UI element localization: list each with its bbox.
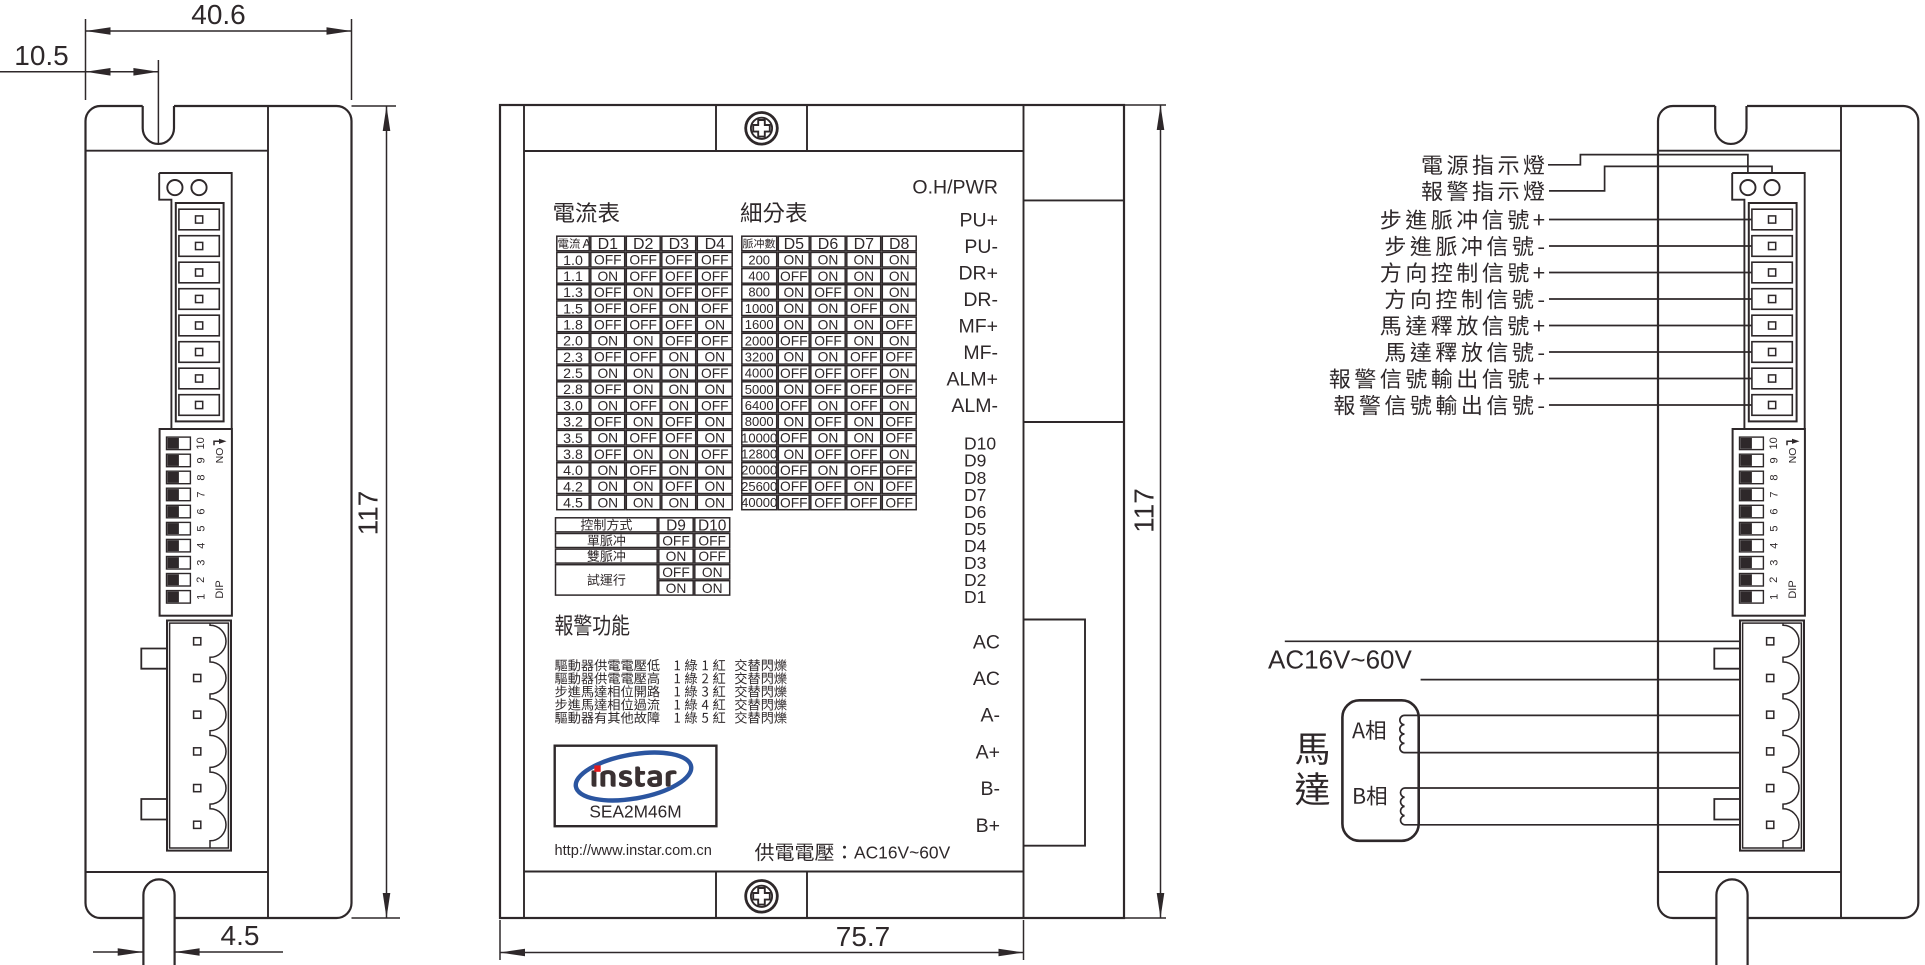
svg-text:OFF: OFF [780,366,808,381]
svg-text:OFF: OFF [814,382,842,397]
svg-text:OFF: OFF [780,269,808,284]
svg-text:ON: ON [668,495,689,510]
svg-text:ON: ON [853,415,874,430]
svg-text:8: 8 [1768,474,1780,480]
svg-text:OFF: OFF [701,269,729,284]
svg-text:2.0: 2.0 [563,334,583,350]
svg-text:ON: ON [818,317,839,332]
svg-text:OFF: OFF [701,447,729,462]
svg-text:ON: ON [668,366,689,381]
svg-text:A+: A+ [976,741,1000,763]
svg-text:2.8: 2.8 [563,382,583,398]
svg-text:ON: ON [853,479,874,494]
svg-text:OFF: OFF [850,301,878,316]
svg-text:D6: D6 [818,236,839,253]
svg-text:ON: ON [702,581,723,596]
svg-text:OFF: OFF [665,479,693,494]
svg-text:3: 3 [195,560,207,566]
svg-text:4.5: 4.5 [221,920,260,951]
svg-text:3.5: 3.5 [563,431,583,447]
svg-text:D5: D5 [784,236,805,253]
svg-text:2: 2 [195,577,207,583]
svg-text:OFF: OFF [701,253,729,268]
svg-text:AC16V~60V: AC16V~60V [1268,645,1412,675]
svg-text:ON: ON [853,334,874,349]
svg-text:40000: 40000 [741,495,777,510]
svg-text:OFF: OFF [629,350,657,365]
svg-text:40.6: 40.6 [191,0,246,30]
svg-text:OFF: OFF [780,495,808,510]
svg-text:ON: ON [853,317,874,332]
svg-text:ON: ON [783,415,804,430]
svg-text:OFF: OFF [885,495,913,510]
svg-text:D8: D8 [889,236,910,253]
svg-text:OFF: OFF [780,334,808,349]
svg-text:OFF: OFF [662,565,690,580]
svg-text:ON: ON [818,253,839,268]
svg-text:5000: 5000 [745,382,774,397]
svg-text:OFF: OFF [665,334,693,349]
svg-text:DR+: DR+ [958,263,998,285]
svg-text:4000: 4000 [745,366,774,381]
svg-text:B+: B+ [976,815,1000,837]
svg-text:4.5: 4.5 [563,496,583,512]
svg-text:D3: D3 [669,236,690,253]
svg-text:OFF: OFF [850,350,878,365]
svg-text:OFF: OFF [594,447,622,462]
svg-text:ON: ON [853,253,874,268]
svg-text:ON: ON [597,479,618,494]
svg-text:OFF: OFF [698,549,726,564]
svg-text:ON: ON [597,398,618,413]
svg-text:ON: ON [704,382,725,397]
svg-text:800: 800 [748,285,770,300]
svg-text:ON: ON [889,301,910,316]
svg-text:20000: 20000 [741,463,777,478]
svg-text:AC: AC [973,668,1000,690]
svg-text:3.2: 3.2 [563,415,583,431]
svg-text:ON: ON [853,285,874,300]
svg-text:OFF: OFF [594,415,622,430]
svg-text:2.5: 2.5 [563,366,583,382]
svg-text:OFF: OFF [885,382,913,397]
svg-text:OFF: OFF [814,366,842,381]
svg-text:OFF: OFF [850,366,878,381]
svg-text:117: 117 [353,491,384,536]
svg-text:25600: 25600 [741,479,777,494]
svg-text:OFF: OFF [814,415,842,430]
svg-text:DIP: DIP [1787,580,1799,598]
svg-text:ON: ON [633,334,654,349]
svg-text:OFF: OFF [885,350,913,365]
svg-text:ON: ON [818,350,839,365]
svg-text:1.3: 1.3 [563,285,583,301]
svg-text:3: 3 [1768,560,1780,566]
svg-text:MF-: MF- [963,342,998,364]
svg-text:ON: ON [783,350,804,365]
svg-text:8: 8 [195,474,207,480]
svg-text:10.5: 10.5 [14,40,69,71]
svg-text:1: 1 [195,594,207,600]
svg-text:ON: ON [783,317,804,332]
svg-text:OFF: OFF [885,463,913,478]
svg-text:ON: ON [597,269,618,284]
svg-text:O.H/PWR: O.H/PWR [912,177,998,199]
svg-text:ON: ON [818,398,839,413]
svg-text:3.8: 3.8 [563,447,583,463]
svg-text:1.1: 1.1 [563,269,583,285]
svg-text:OFF: OFF [814,285,842,300]
svg-text:1.8: 1.8 [563,318,583,334]
svg-text:ON: ON [597,366,618,381]
svg-text:9: 9 [1768,457,1780,463]
svg-text:400: 400 [748,269,770,284]
svg-text:ON: ON [853,269,874,284]
svg-text:6: 6 [195,509,207,515]
svg-text:OFF: OFF [850,382,878,397]
svg-text:OFF: OFF [594,253,622,268]
svg-text:ALM-: ALM- [951,395,998,417]
svg-text:7: 7 [1768,491,1780,497]
svg-text:ON: ON [668,447,689,462]
svg-text:OFF: OFF [662,534,690,549]
svg-text:OFF: OFF [629,301,657,316]
svg-text:1.5: 1.5 [563,301,583,317]
svg-text:OFF: OFF [701,366,729,381]
svg-text:OFF: OFF [665,317,693,332]
svg-text:OFF: OFF [594,285,622,300]
svg-text:OFF: OFF [850,495,878,510]
svg-text:OFF: OFF [814,495,842,510]
svg-text:ON: ON [889,285,910,300]
svg-text:OFF: OFF [701,398,729,413]
svg-text:ON: ON [633,495,654,510]
svg-text:ON: ON [783,382,804,397]
svg-text:ON: ON [889,253,910,268]
svg-text:ON: ON [889,366,910,381]
svg-text:D9: D9 [666,517,686,534]
svg-text:ON: ON [633,415,654,430]
svg-text:OFF: OFF [594,317,622,332]
svg-text:D4: D4 [705,236,726,253]
svg-text:8000: 8000 [745,414,774,429]
svg-text:OFF: OFF [885,317,913,332]
svg-text:2: 2 [1768,577,1780,583]
svg-text:10: 10 [1768,437,1780,449]
svg-text:10: 10 [195,437,207,449]
svg-text:OFF: OFF [665,269,693,284]
svg-text:3.0: 3.0 [563,398,583,414]
svg-text:ON: ON [704,463,725,478]
svg-text:ON: ON [213,448,225,464]
svg-text:DIP: DIP [214,580,226,598]
svg-text:OFF: OFF [629,431,657,446]
svg-text:ON: ON [889,447,910,462]
svg-text:4: 4 [1768,543,1780,549]
svg-text:5: 5 [1768,526,1780,532]
svg-text:ON: ON [597,463,618,478]
svg-text:117: 117 [1129,488,1160,533]
svg-text:ON: ON [889,398,910,413]
svg-text:OFF: OFF [850,398,878,413]
svg-text:1600: 1600 [745,317,774,332]
svg-text:A-: A- [981,705,1001,727]
svg-text:ON: ON [783,301,804,316]
svg-text:OFF: OFF [701,301,729,316]
svg-text:D1: D1 [964,587,986,607]
svg-text:2.3: 2.3 [563,350,583,366]
svg-text:ON: ON [704,495,725,510]
svg-text:ON: ON [633,285,654,300]
svg-text:OFF: OFF [698,534,726,549]
svg-text:ON: ON [668,301,689,316]
svg-text:ON: ON [668,398,689,413]
svg-text:D2: D2 [633,236,654,253]
svg-text:OFF: OFF [814,447,842,462]
svg-text:ON: ON [704,431,725,446]
svg-text:12800: 12800 [741,447,777,462]
svg-text:ON: ON [1786,448,1798,464]
svg-text:ON: ON [889,269,910,284]
svg-text:ON: ON [818,431,839,446]
svg-text:ON: ON [702,565,723,580]
svg-text:ON: ON [633,447,654,462]
svg-text:ON: ON [668,463,689,478]
svg-text:OFF: OFF [629,317,657,332]
svg-text:ON: ON [818,269,839,284]
svg-text:AC16V~60V: AC16V~60V [854,843,951,863]
svg-text:4.0: 4.0 [563,463,583,479]
svg-text:ON: ON [668,382,689,397]
svg-text:OFF: OFF [780,431,808,446]
svg-text:7: 7 [195,491,207,497]
svg-text:OFF: OFF [629,269,657,284]
svg-text:10000: 10000 [741,430,777,445]
svg-text:DR-: DR- [963,289,998,311]
svg-text:ON: ON [818,301,839,316]
svg-text:OFF: OFF [594,382,622,397]
svg-text:OFF: OFF [629,398,657,413]
svg-text:6: 6 [1768,509,1780,515]
svg-text:OFF: OFF [885,479,913,494]
svg-text:OFF: OFF [665,285,693,300]
svg-text:ON: ON [783,447,804,462]
svg-text:ON: ON [783,285,804,300]
svg-text:AC: AC [973,631,1000,653]
svg-text:1: 1 [1768,594,1780,600]
svg-text:9: 9 [195,457,207,463]
svg-text:ON: ON [668,350,689,365]
svg-text:ON: ON [666,549,687,564]
svg-text:ON: ON [818,463,839,478]
svg-text:ON: ON [704,415,725,430]
svg-text:SEA2M46M: SEA2M46M [589,802,681,822]
svg-text:OFF: OFF [701,285,729,300]
svg-text:1000: 1000 [745,301,774,316]
svg-text:OFF: OFF [850,463,878,478]
svg-text:D10: D10 [698,517,727,534]
svg-text:http://www.instar.com.cn: http://www.instar.com.cn [555,843,712,859]
svg-text:OFF: OFF [629,253,657,268]
svg-text:ON: ON [704,479,725,494]
svg-text:OFF: OFF [594,301,622,316]
svg-text:MF+: MF+ [958,316,998,338]
svg-text:ON: ON [889,334,910,349]
svg-text:ALM+: ALM+ [947,369,998,391]
svg-text:4: 4 [195,543,207,549]
svg-text:ON: ON [633,382,654,397]
svg-text:PU+: PU+ [960,210,998,232]
svg-text:A: A [583,237,592,251]
svg-text:ON: ON [633,366,654,381]
svg-text:ON: ON [633,479,654,494]
svg-text:OFF: OFF [629,463,657,478]
svg-text:ON: ON [704,350,725,365]
svg-text:D1: D1 [598,236,619,253]
svg-text:ON: ON [597,334,618,349]
svg-text:1.0: 1.0 [563,253,583,269]
svg-text:ON: ON [597,431,618,446]
svg-text:4.2: 4.2 [563,479,583,495]
svg-text:B-: B- [981,778,1001,800]
svg-text:ON: ON [666,581,687,596]
svg-text:2000: 2000 [745,333,774,348]
svg-text:200: 200 [748,252,770,267]
svg-text:D7: D7 [854,236,875,253]
svg-text:6400: 6400 [745,398,774,413]
svg-text:OFF: OFF [885,415,913,430]
svg-text:OFF: OFF [665,431,693,446]
svg-text:ON: ON [853,431,874,446]
svg-text:OFF: OFF [885,431,913,446]
svg-text:OFF: OFF [701,334,729,349]
svg-text:PU-: PU- [964,236,998,258]
svg-text:ON: ON [783,253,804,268]
svg-text:ON: ON [597,495,618,510]
svg-text:ON: ON [704,317,725,332]
svg-text:OFF: OFF [814,334,842,349]
svg-text:3200: 3200 [745,349,774,364]
svg-text:5: 5 [195,526,207,532]
svg-text:OFF: OFF [780,479,808,494]
svg-text:OFF: OFF [665,415,693,430]
svg-text:OFF: OFF [814,479,842,494]
svg-text:OFF: OFF [780,398,808,413]
svg-text:OFF: OFF [780,463,808,478]
svg-text:75.7: 75.7 [836,921,891,952]
svg-text:OFF: OFF [665,253,693,268]
svg-text:OFF: OFF [594,350,622,365]
svg-text:OFF: OFF [850,447,878,462]
